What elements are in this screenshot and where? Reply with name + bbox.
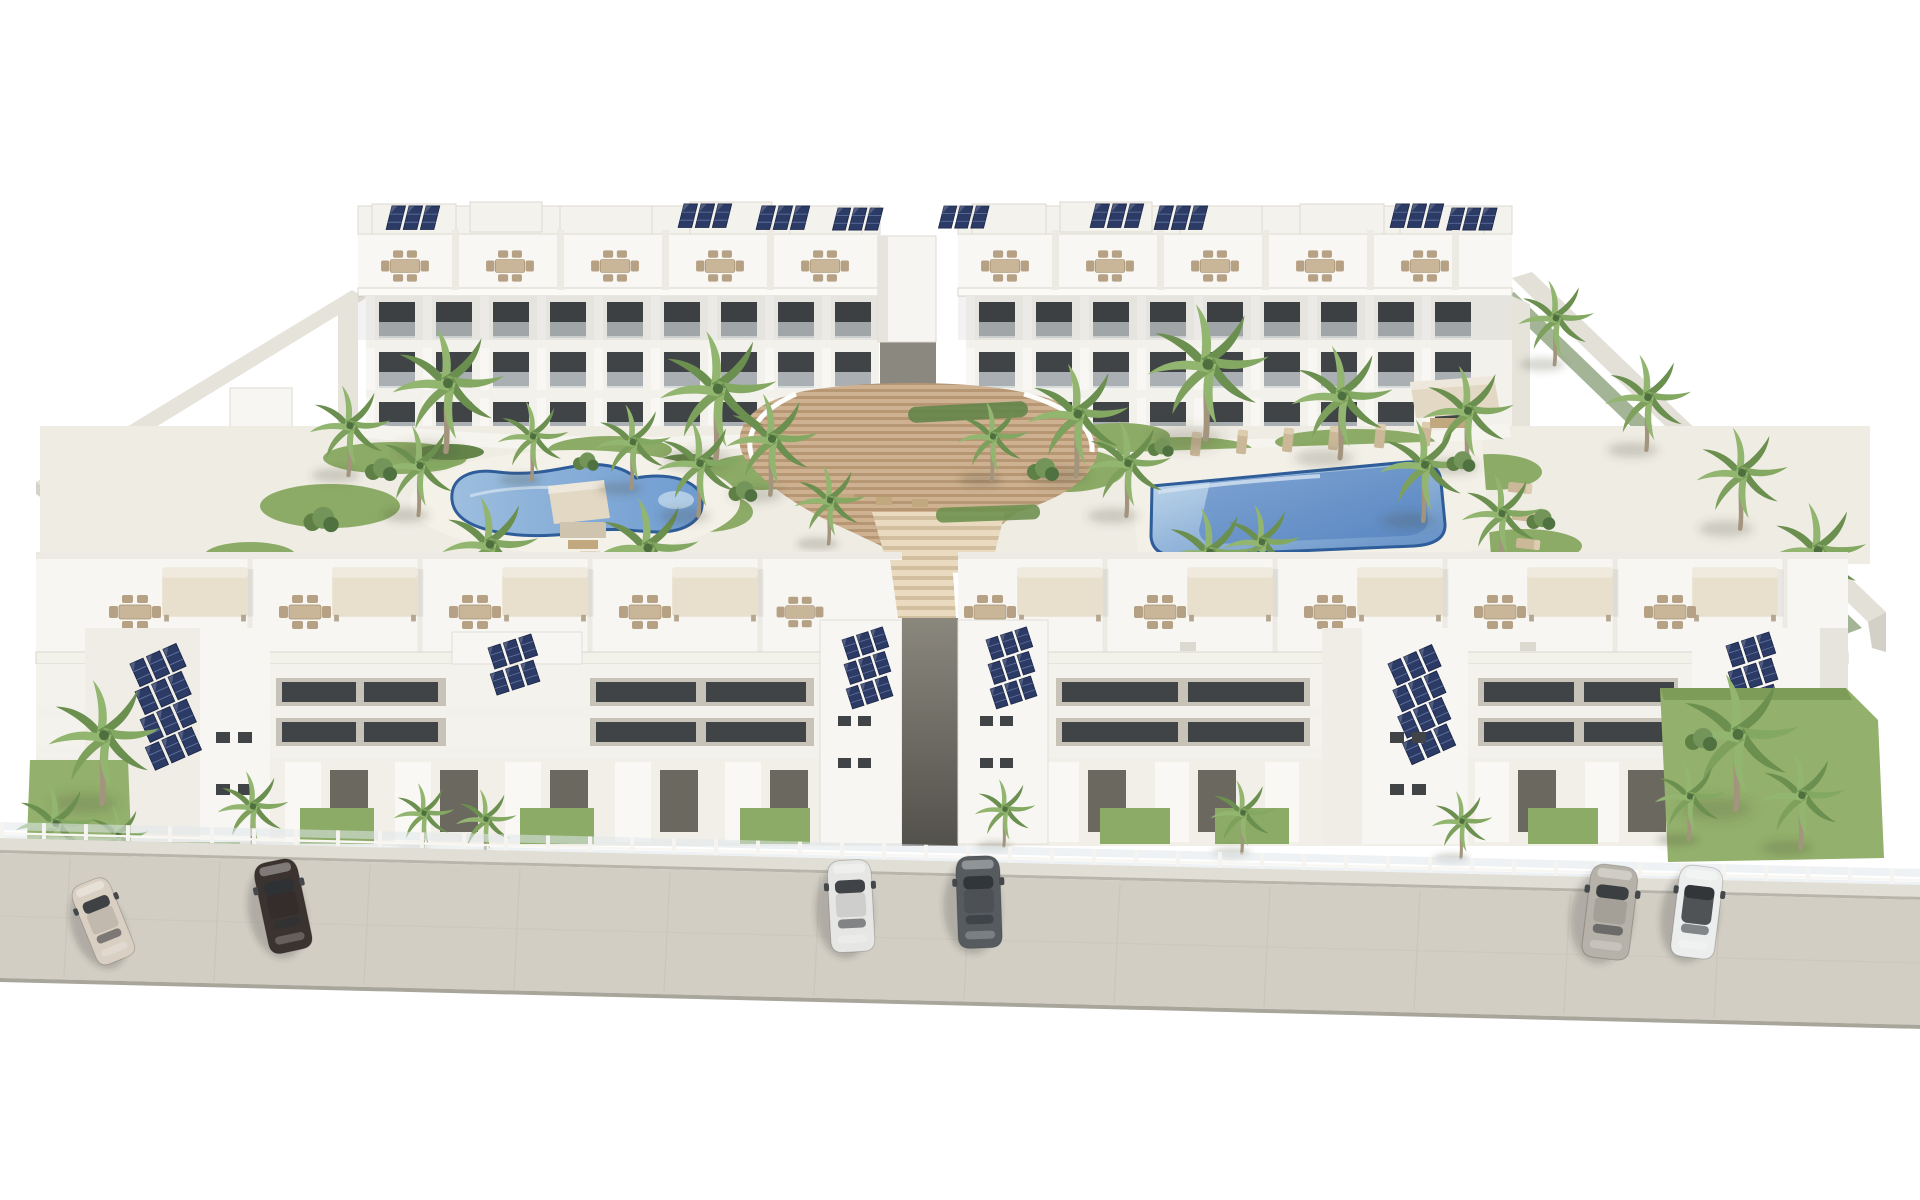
dark-roof: [1681, 884, 1715, 925]
roof-parasol: [502, 567, 593, 621]
solar-array: [832, 208, 883, 230]
right-side-garden: [1655, 674, 1884, 862]
roof-parasol: [332, 567, 423, 621]
solar-array: [756, 206, 810, 229]
solar-array: [1154, 206, 1208, 229]
roof-parasol: [1527, 567, 1618, 621]
roof-parasol: [1017, 567, 1108, 621]
solar-array: [1090, 204, 1144, 227]
pedestrian-passage: [902, 618, 958, 846]
stair-tower: [820, 620, 904, 844]
central-bridge: [878, 236, 936, 392]
front-left-building: [36, 552, 904, 846]
roof-parasol: [1692, 567, 1783, 621]
garden-bench: [912, 499, 928, 507]
garden-bench: [876, 497, 892, 505]
roof-parasol: [672, 567, 763, 621]
roof-parasol: [162, 567, 253, 621]
solar-array: [386, 206, 440, 229]
stage: [0, 0, 1920, 1200]
solar-array: [678, 204, 732, 227]
solar-array: [1446, 208, 1497, 230]
aerial-render-svg: [0, 0, 1920, 1200]
roof-parasol: [1357, 567, 1448, 621]
roof-parasol: [1187, 567, 1278, 621]
solar-array: [938, 206, 989, 228]
passage-steps: [890, 560, 956, 618]
solar-array: [1390, 204, 1444, 227]
